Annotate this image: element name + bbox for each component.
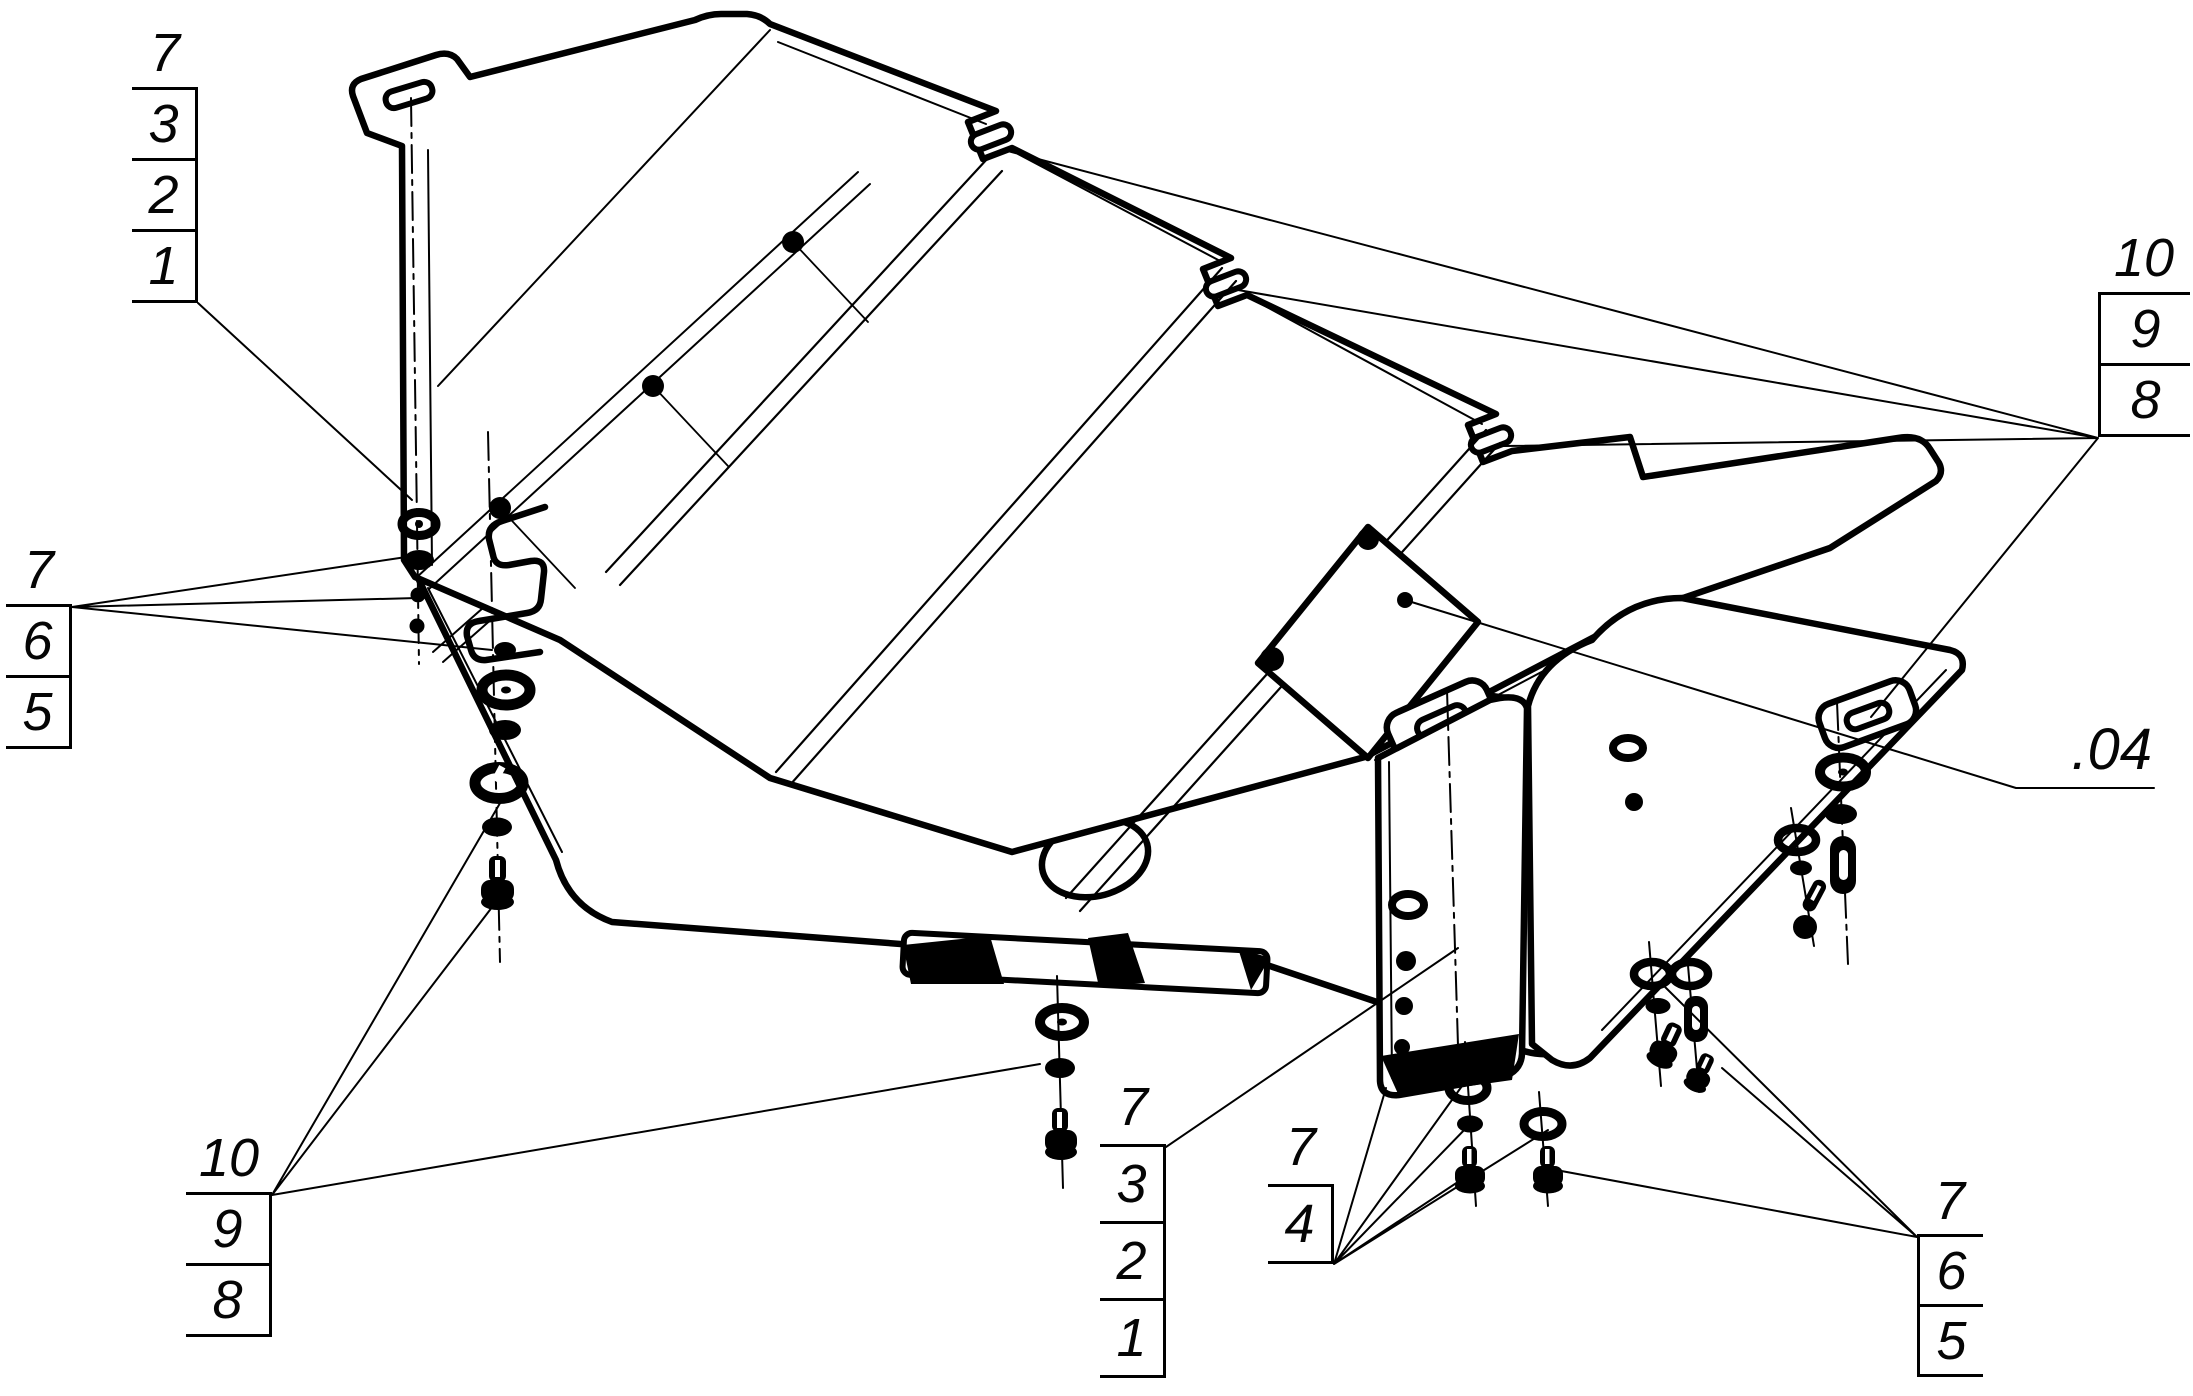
callout-number: 9 bbox=[2098, 295, 2190, 366]
washer-icon bbox=[411, 588, 426, 603]
bolt-hole bbox=[1260, 647, 1284, 671]
bolt-icon bbox=[1681, 1050, 1720, 1096]
callout-number: 5 bbox=[1917, 1307, 1983, 1377]
bolt-hole bbox=[1395, 997, 1413, 1015]
callout-bottom-center: 7 3 2 1 bbox=[1100, 1070, 1166, 1378]
fastener-stack-bracket-b bbox=[1524, 1112, 1563, 1194]
callout-number: 7 bbox=[6, 536, 72, 607]
callout-number: 1 bbox=[1100, 1301, 1166, 1378]
callout-mid-left: 7 6 5 bbox=[6, 536, 72, 749]
washer-icon bbox=[489, 720, 521, 740]
callout-bottom-right: 7 6 5 bbox=[1917, 1167, 1983, 1377]
washer-icon bbox=[404, 550, 434, 570]
callout-number: 6 bbox=[6, 607, 72, 678]
callout-number: 3 bbox=[1100, 1147, 1166, 1224]
washer-icon bbox=[1045, 1058, 1075, 1078]
callout-number: 10 bbox=[2098, 224, 2190, 295]
callout-number: 4 bbox=[1268, 1187, 1334, 1264]
callout-number: 2 bbox=[1100, 1224, 1166, 1301]
callout-number: 5 bbox=[6, 678, 72, 749]
washer-icon bbox=[410, 619, 425, 634]
callout-number: 6 bbox=[1917, 1237, 1983, 1307]
callout-number: 1 bbox=[132, 232, 198, 303]
spacer-icon bbox=[1830, 836, 1856, 894]
reference-label: .04 bbox=[2016, 716, 2152, 783]
callout-right: 10 9 8 bbox=[2098, 224, 2190, 437]
nut-icon bbox=[494, 642, 516, 658]
callout-number: 8 bbox=[2098, 366, 2190, 437]
technical-drawing-page: { "drawing": { "reference_label": ".04",… bbox=[0, 0, 2193, 1396]
washer-icon bbox=[1672, 962, 1708, 986]
callout-top-left: 7 3 2 1 bbox=[132, 19, 198, 303]
bolt-hole bbox=[1396, 951, 1416, 971]
callout-number: 7 bbox=[132, 19, 198, 90]
bolt-icon bbox=[481, 856, 514, 910]
washer-icon bbox=[1646, 998, 1671, 1014]
right-wing-plate bbox=[1528, 598, 1963, 1066]
callout-bottom-center-right: 7 4 bbox=[1268, 1110, 1334, 1264]
callout-number: 9 bbox=[186, 1195, 272, 1266]
exploded-assembly-drawing bbox=[0, 0, 2193, 1396]
bolt-icon bbox=[1045, 1108, 1077, 1160]
washer-icon bbox=[1825, 804, 1857, 824]
bolt-icon bbox=[1793, 915, 1817, 939]
callout-number: 10 bbox=[186, 1124, 272, 1195]
bolt-hole bbox=[1357, 528, 1379, 550]
fastener-stack-bottom-center bbox=[1040, 1008, 1084, 1160]
callout-number: 7 bbox=[1100, 1070, 1166, 1147]
callout-number: 7 bbox=[1917, 1167, 1983, 1237]
callout-number: 3 bbox=[132, 90, 198, 161]
bolt-hole bbox=[1625, 793, 1643, 811]
bolt-hole bbox=[1394, 1039, 1410, 1055]
washer-icon bbox=[1790, 861, 1812, 876]
callout-number: 8 bbox=[186, 1266, 272, 1337]
bolt-icon bbox=[1644, 1018, 1689, 1072]
callout-number: 2 bbox=[132, 161, 198, 232]
callout-bottom-left: 10 9 8 bbox=[186, 1124, 272, 1337]
callout-number: 7 bbox=[1268, 1110, 1334, 1187]
